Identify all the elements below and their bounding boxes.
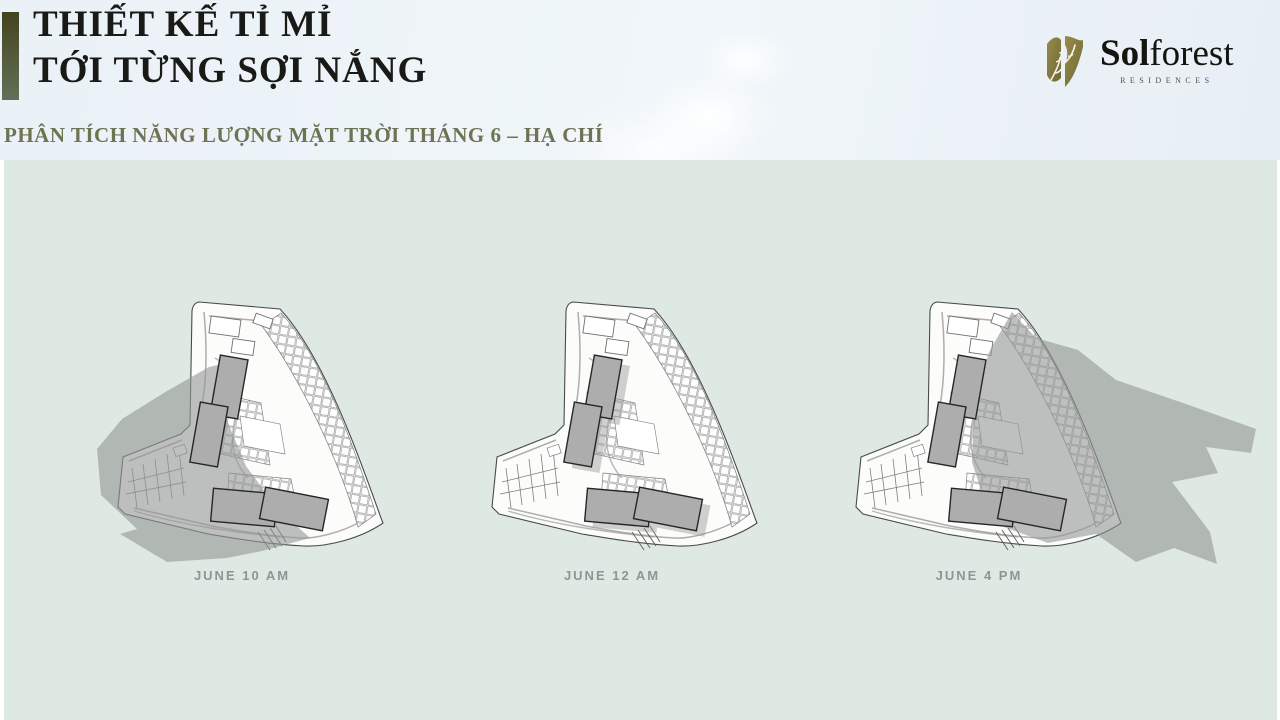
solar-analysis-panel: JUNE 10 AM JUNE 12 AM JUNE 4 PM [4, 160, 1277, 720]
solforest-logo: Solforest RESIDENCES [1046, 34, 1234, 88]
logo-wordmark-bold: Sol [1100, 33, 1149, 74]
diagram-caption-june-10am: JUNE 10 AM [142, 568, 342, 583]
diagram-caption-june-4pm: JUNE 4 PM [879, 568, 1079, 583]
section-subtitle: PHÂN TÍCH NĂNG LƯỢNG MẶT TRỜI THÁNG 6 – … [4, 123, 603, 148]
solforest-leaf-emblem-icon [1046, 34, 1084, 88]
slide: THIẾT KẾ TỈ MỈ TỚI TỪNG SỢI NẮNG Solfore… [0, 0, 1280, 720]
title-line-2: TỚI TỪNG SỢI NẮNG [33, 48, 427, 94]
logo-text: Solforest RESIDENCES [1100, 34, 1234, 85]
title-line-1: THIẾT KẾ TỈ MỈ [33, 2, 427, 48]
logo-tagline: RESIDENCES [1100, 76, 1234, 85]
page-title: THIẾT KẾ TỈ MỈ TỚI TỪNG SỢI NẮNG [33, 2, 427, 94]
title-accent-bar [2, 12, 19, 100]
logo-wordmark: Solforest [1100, 34, 1234, 74]
diagram-caption-june-12am: JUNE 12 AM [512, 568, 712, 583]
siteplan-june-12am [486, 296, 786, 560]
siteplan-june-4pm [850, 296, 1270, 576]
logo-wordmark-regular: forest [1149, 33, 1233, 74]
siteplan-june-10am [112, 296, 412, 560]
shadow-east [972, 312, 1256, 564]
